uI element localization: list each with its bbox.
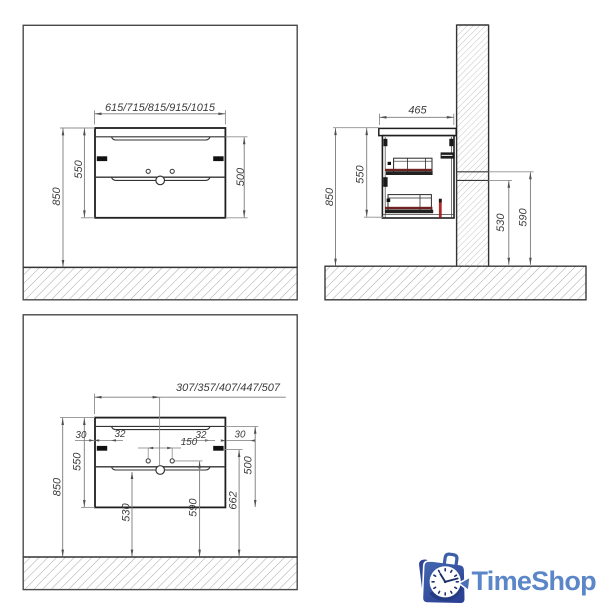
- svg-text:32: 32: [115, 429, 126, 440]
- svg-text:530: 530: [495, 213, 507, 232]
- svg-text:307/357/407/447/507: 307/357/407/447/507: [176, 382, 281, 394]
- svg-text:662: 662: [227, 491, 239, 509]
- svg-text:32: 32: [196, 430, 207, 441]
- svg-text:550: 550: [73, 159, 85, 178]
- svg-text:550: 550: [72, 452, 84, 471]
- svg-text:590: 590: [517, 208, 529, 227]
- svg-text:530: 530: [121, 503, 133, 522]
- svg-text:590: 590: [188, 498, 200, 517]
- svg-text:150: 150: [181, 437, 198, 448]
- svg-text:30: 30: [235, 429, 246, 440]
- svg-text:30: 30: [76, 430, 87, 441]
- svg-text:500: 500: [235, 167, 247, 186]
- svg-text:465: 465: [408, 104, 427, 116]
- svg-text:850: 850: [51, 477, 63, 496]
- svg-text:500: 500: [242, 455, 254, 474]
- svg-text:550: 550: [355, 164, 367, 183]
- svg-text:TimeShop: TimeShop: [472, 566, 597, 596]
- svg-text:850: 850: [51, 186, 63, 205]
- svg-text:615/715/815/915/1015: 615/715/815/915/1015: [105, 102, 216, 114]
- svg-text:850: 850: [324, 187, 336, 206]
